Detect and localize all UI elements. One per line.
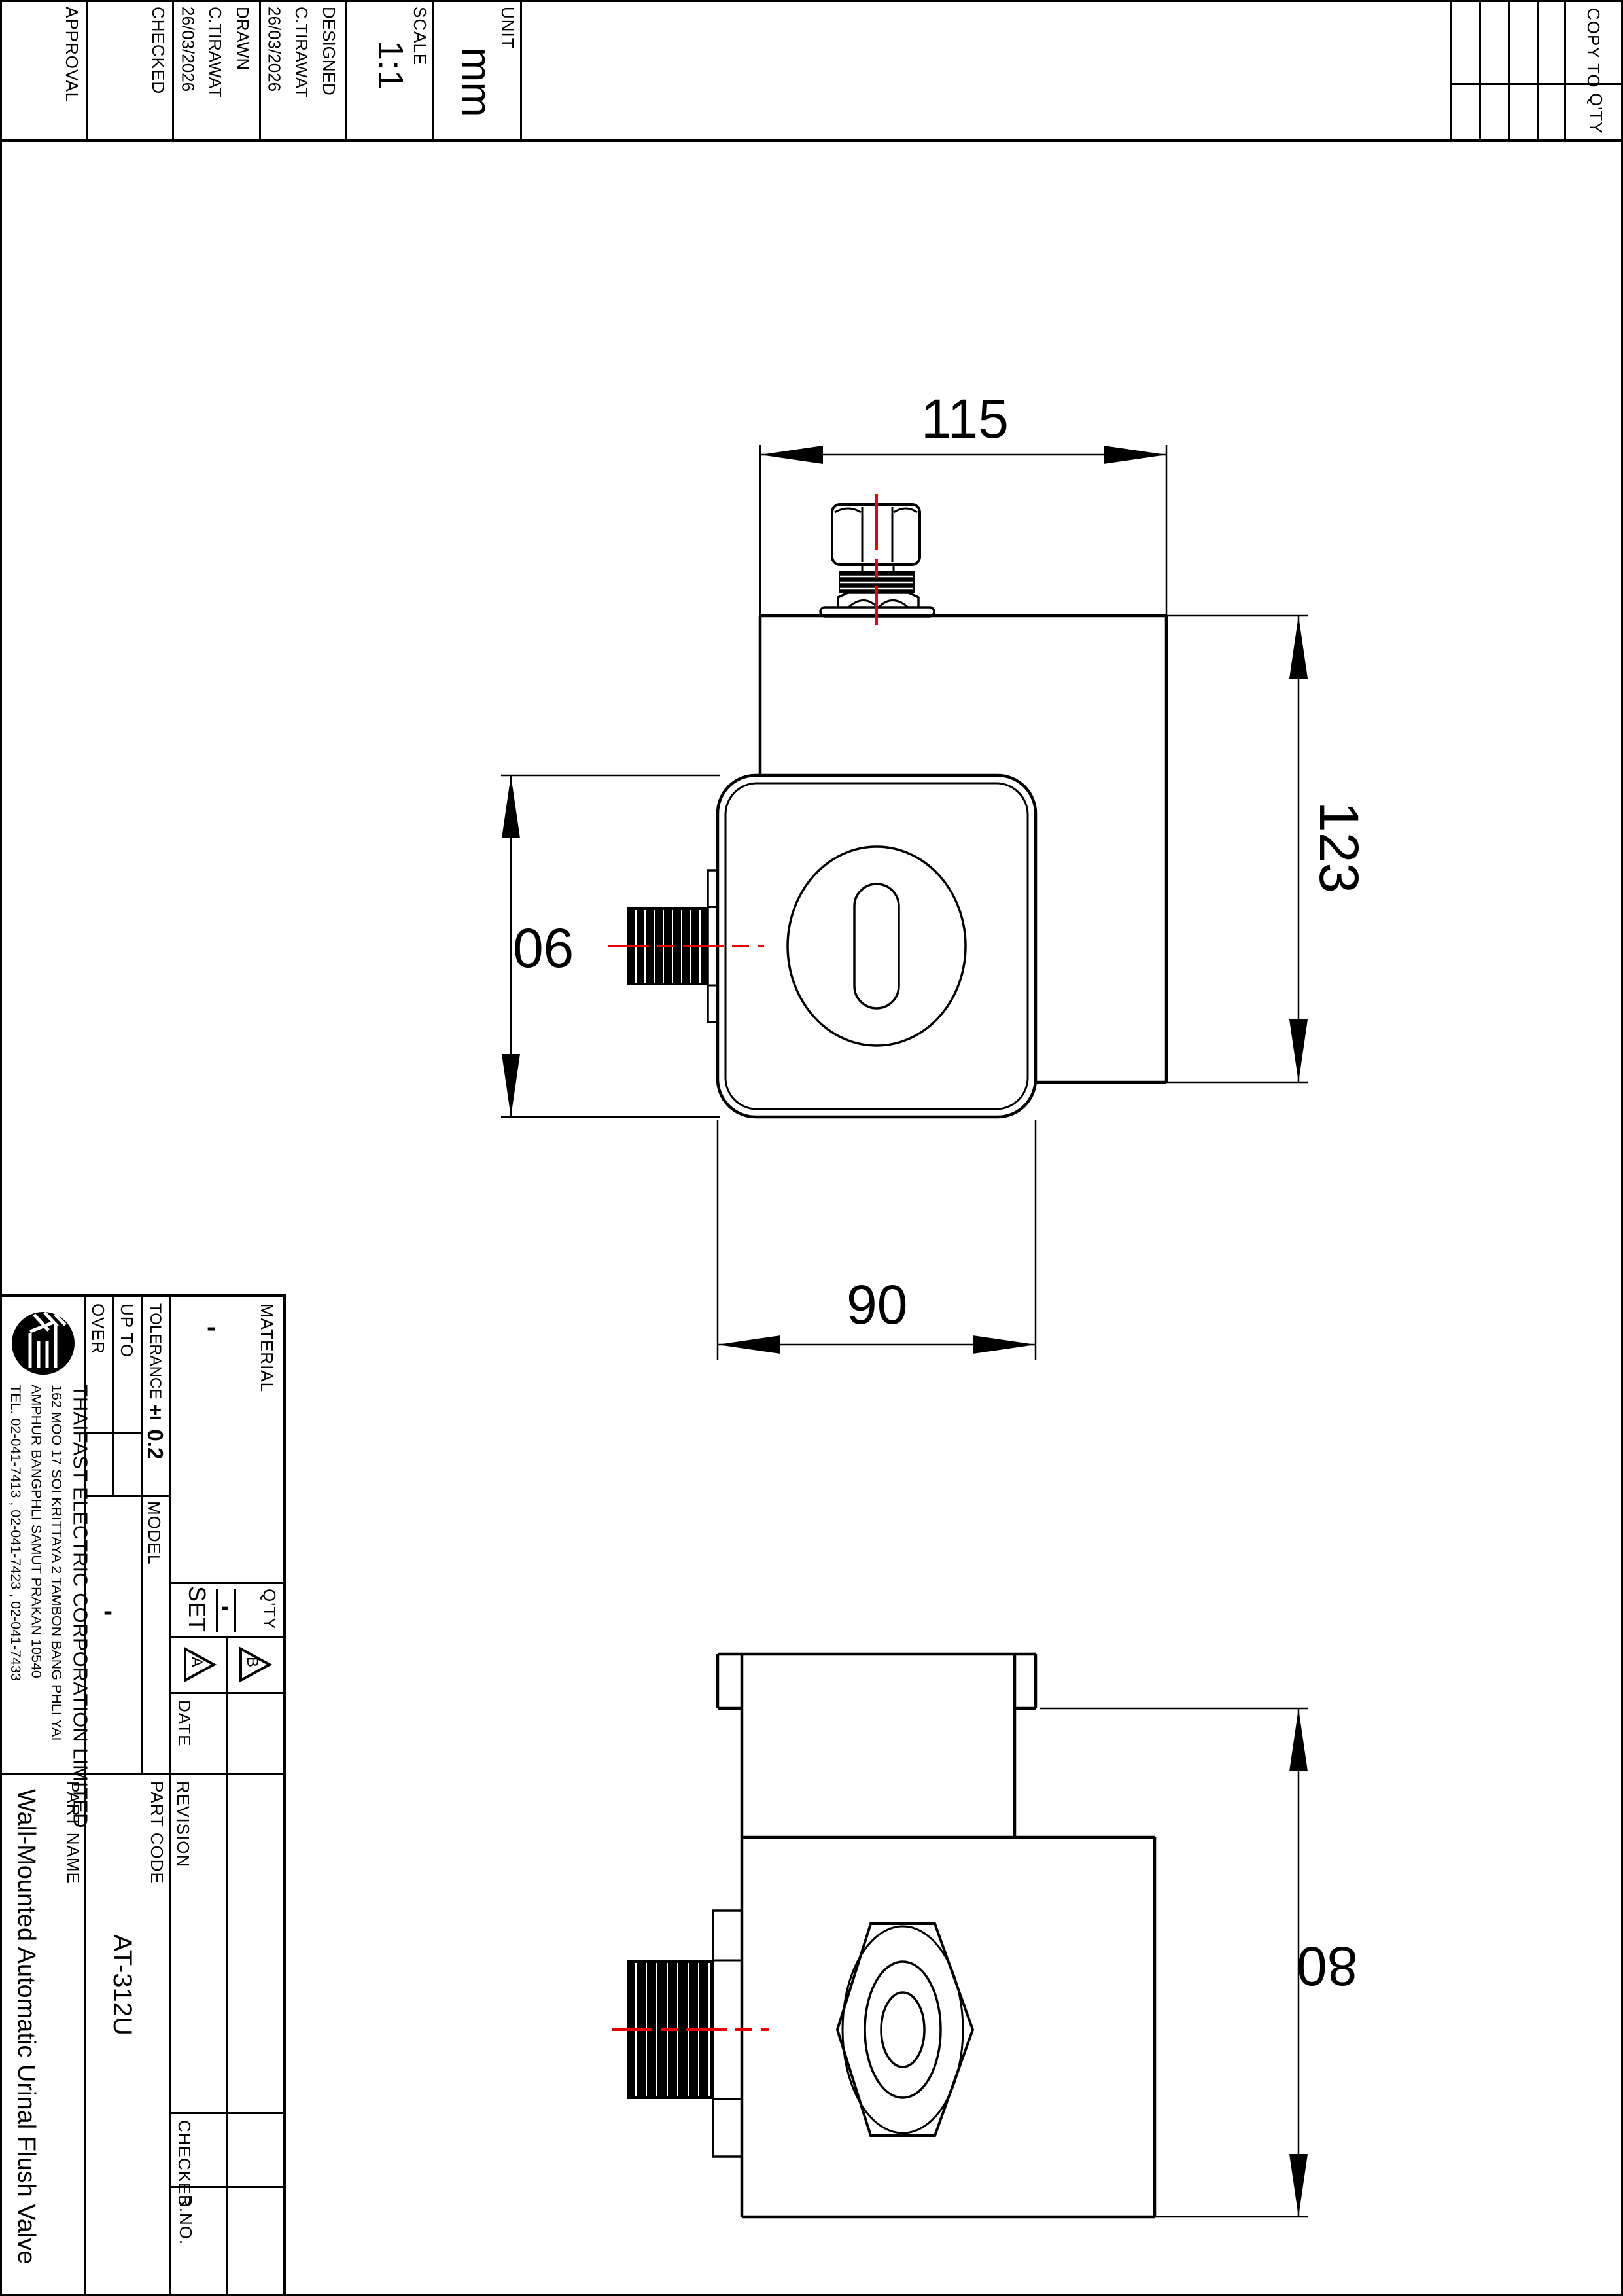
set-label: SET [183, 1586, 211, 1632]
dim-123-text: 123 [1307, 802, 1370, 893]
tolerance-label: TOLERANCE± 0.2 [143, 1303, 167, 1459]
dim-123 [1166, 616, 1308, 1082]
company-block: THAIFAST ELECTRIC CORPORATION LIMITED 16… [5, 1385, 94, 1828]
model-value: - [103, 1595, 113, 1627]
dim-115-text: 115 [909, 387, 1021, 451]
drawing-linework [0, 0, 1623, 2296]
set-value: - [221, 1593, 229, 1620]
set-rule-1 [216, 1589, 218, 1632]
thaifast-te-logo [10, 1311, 76, 1376]
company-tel: TEL. 02-041-7413 , 02-041-7423 , 02-041-… [5, 1385, 26, 1828]
material-value: - [207, 1311, 216, 1343]
tolerance-upto-label: UP TO [116, 1303, 137, 1358]
title-block-right [283, 1294, 286, 2296]
part-code-value: AT-312U [107, 1934, 137, 2036]
revision-label: REVISION [173, 1781, 193, 1867]
revision-mark-b: B [243, 1657, 261, 1667]
company-address2: AMPHUR BANGPHLI SAMUT PRAKAN 10540 [26, 1385, 46, 1828]
dim-80-text: 80 [1297, 1934, 1357, 1998]
part-name-label: PART NAME [63, 1781, 83, 1884]
company-address1: 162 MOO 17 SOI KRITTAYA 2 TAMBON BANG PH… [46, 1385, 66, 1828]
material-label: MATERIAL [256, 1303, 277, 1392]
part-name-value: Wall-Mounted Automatic Urinal Flush Valv… [12, 1789, 40, 2265]
part-code-label: PART CODE [147, 1781, 167, 1884]
revision-mark-a: A [187, 1657, 205, 1667]
rno-label: R.NO. [175, 2195, 196, 2245]
tolerance-over-label: OVER [88, 1303, 108, 1354]
side-view-pipe [627, 1911, 742, 2157]
dim-90-bottom-text: 90 [846, 1273, 907, 1337]
set-qty-label: Q'TY [259, 1589, 279, 1629]
dim-115 [760, 445, 1166, 616]
dim-80 [1040, 1708, 1308, 2217]
company-name: THAIFAST ELECTRIC CORPORATION LIMITED [67, 1385, 94, 1828]
date-label: DATE [174, 1700, 194, 1746]
drawing-sheet: APPROVAL CHECKED DRAWN C.TIRAWAT 26/03/2… [0, 0, 1623, 2296]
model-label: MODEL [144, 1501, 164, 1564]
side-view-hex-fitting [837, 1924, 973, 2136]
front-bezel [718, 775, 1036, 1117]
dim-90-left-text: 90 [513, 916, 574, 980]
set-rule-2 [234, 1589, 236, 1632]
